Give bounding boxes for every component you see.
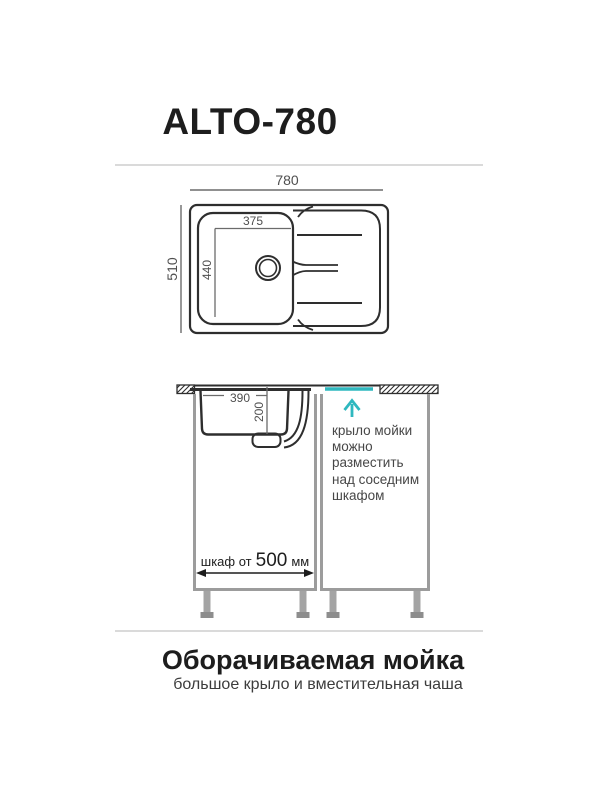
dim-label-440: 440 xyxy=(200,249,214,291)
wing-note-text: крыло мойки можно разместить над соседни… xyxy=(332,423,452,504)
footer-subtitle: большое крыло и вместительная чаша xyxy=(18,676,600,694)
wing-note-line: можно xyxy=(332,439,452,455)
cabinet-dim-prefix: шкаф от xyxy=(201,554,252,569)
dim-label-375: 375 xyxy=(223,214,283,228)
dim-label-780: 780 xyxy=(237,172,337,188)
footer-title: Оборачиваемая мойка xyxy=(13,645,600,676)
page-title: ALTO-780 xyxy=(0,101,500,143)
wing-note-line: разместить xyxy=(332,455,452,471)
countertop-hatch-right xyxy=(380,385,438,394)
dim-label-510: 510 xyxy=(164,249,180,289)
cabinet-feet xyxy=(201,612,424,618)
wing-note-line: крыло мойки xyxy=(332,423,452,439)
cabinet-dim-label: шкаф от500мм xyxy=(175,551,335,572)
divider-bottom xyxy=(115,630,483,632)
cabinet-dim-value: 500 xyxy=(256,550,288,571)
cabinet-legs xyxy=(204,591,421,613)
wing-note-line: над соседним xyxy=(332,472,452,488)
product-spec-card: ALTO-780 780 510 375 440 390 200 крыло м… xyxy=(0,0,600,800)
wing-note-line: шкафом xyxy=(332,488,452,504)
cabinet-dim-unit: мм xyxy=(291,554,309,569)
divider-top xyxy=(115,164,483,166)
dim-label-200: 200 xyxy=(252,391,266,433)
